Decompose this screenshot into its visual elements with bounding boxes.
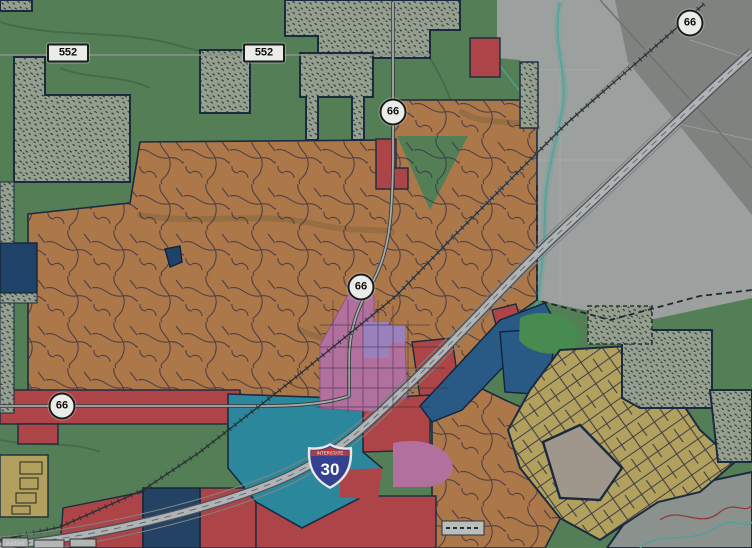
shield-66-north: 66 — [380, 99, 407, 126]
shield-66-northeast: 66 — [677, 10, 704, 37]
map-layers — [0, 0, 752, 548]
zoning-map-canvas[interactable]: 552 552 66 66 66 66 INTERSTATE 30 Leafle… — [0, 0, 752, 548]
shield-552-west: 552 — [47, 44, 89, 63]
i30-number-text: 30 — [321, 460, 340, 479]
map-attribution: Leaflet | — [2, 541, 29, 548]
shield-i30: INTERSTATE 30 — [307, 442, 353, 490]
shield-66-center: 66 — [348, 274, 375, 301]
shield-552-east: 552 — [243, 44, 285, 63]
i30-banner-text: INTERSTATE — [317, 450, 344, 455]
shield-66-west: 66 — [49, 393, 76, 420]
zone-khaki-small[interactable] — [0, 455, 48, 517]
